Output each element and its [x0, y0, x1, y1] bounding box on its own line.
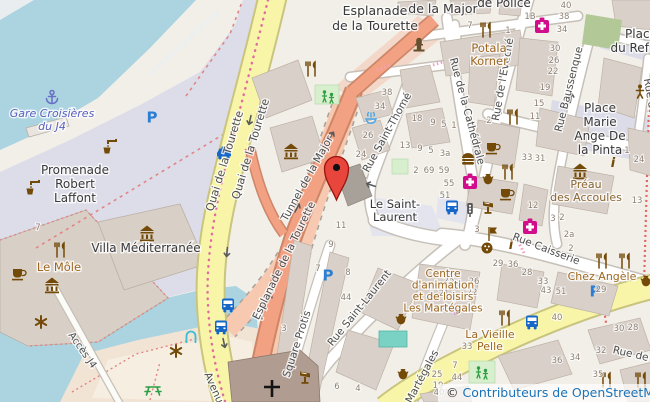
house-number: 30	[614, 324, 625, 334]
house-number: 2	[559, 213, 564, 223]
house-number: 30	[550, 44, 561, 54]
house-number: 35	[593, 370, 604, 380]
house-number: 26	[549, 56, 560, 66]
place-label-le-saint-laurent: Laurent	[373, 210, 418, 224]
house-number: 13	[632, 196, 643, 206]
attribution-text[interactable]: ©Contributeurs de OpenStreetMap	[446, 385, 650, 400]
information-icon	[611, 156, 616, 171]
house-number: 38	[559, 12, 570, 22]
place-label-preau-des-accoules: Préau	[570, 178, 601, 191]
house-number: 5	[441, 120, 446, 130]
house-number: 8	[345, 268, 350, 278]
place-label-chez-angele: Chez Angèle	[568, 270, 637, 283]
house-number: 44	[452, 373, 463, 383]
place-label-place-marie-ange-de-la-pinta: Marie	[583, 115, 616, 129]
house-number: 29	[596, 285, 607, 295]
house-number: 25	[432, 370, 443, 380]
place-label-promenade-robert-laffont: Robert	[55, 177, 95, 191]
place-label-place-marie-ange-de-la-pinta: la Pinta	[578, 143, 622, 157]
house-number: 34	[375, 102, 386, 112]
place-label-centre-les-martegales: et de loisirs	[413, 291, 474, 303]
house-number: 34	[557, 25, 568, 35]
house-number: 38	[382, 88, 393, 98]
house-number: 43	[541, 286, 552, 296]
house-number: 32	[596, 346, 607, 356]
place-label-le-saint-laurent: Le Saint-	[370, 197, 420, 211]
place-label-place-du-refuge: Place	[625, 27, 650, 41]
house-number: 34	[570, 353, 581, 363]
house-number: 11	[336, 221, 347, 231]
house-number: 44	[341, 293, 352, 303]
parking-icon	[147, 109, 158, 127]
house-number: 69	[424, 166, 435, 176]
map-viewport[interactable]: P i	[0, 0, 650, 402]
house-number: 19	[540, 83, 551, 93]
house-number: 40	[561, 1, 572, 11]
map-canvas[interactable]: P i	[0, 0, 650, 402]
house-number: 36	[508, 260, 519, 270]
house-number: 55	[444, 179, 455, 189]
house-number: 7	[315, 264, 320, 274]
house-number: 31	[535, 154, 546, 164]
house-number: 1	[451, 121, 456, 131]
house-number: 3	[281, 324, 286, 334]
place-label-de-police: de Police	[477, 0, 531, 10]
house-number: 9	[430, 118, 435, 128]
house-number: 28	[628, 323, 639, 333]
osm-contributors-link[interactable]: Contributeurs de OpenStreetMap	[463, 385, 650, 400]
place-label-place-marie-ange-de-la-pinta: Place	[584, 101, 616, 115]
pool	[379, 331, 407, 347]
place-label-centre-les-martegales: Les Martégales	[403, 303, 482, 315]
place-label-esplanade-de-la-tourette: Esplanade	[343, 3, 408, 18]
house-number: 18	[412, 114, 423, 124]
house-number: 51	[556, 287, 567, 297]
house-number: 6	[334, 382, 339, 392]
house-number: 11	[530, 112, 541, 122]
place-label-place-du-refuge: du Refuge	[610, 41, 650, 55]
attribution[interactable]: ©Contributeurs de OpenStreetMap	[438, 384, 650, 402]
place-label-la-vieille-pelle: Pelle	[477, 340, 503, 353]
place-label-centre-les-martegales: Centre	[425, 268, 460, 280]
house-number: 24	[356, 150, 367, 160]
house-number: 24	[634, 155, 645, 165]
place-label-le-mole: Le Môle	[37, 260, 81, 274]
place-label-promenade-robert-laffont: Laffont	[54, 191, 96, 205]
place-label-gare-croisieres-du-j4: du J4	[38, 120, 66, 133]
house-number: 7	[35, 223, 40, 233]
place-label-promenade-robert-laffont: Promenade	[41, 163, 109, 177]
house-number: 13	[400, 141, 411, 151]
house-number: 51	[440, 191, 451, 201]
house-number: 33	[522, 153, 533, 163]
place-label-esplanade-de-la-tourette: de la Tourette	[332, 18, 418, 33]
place-label-preau-des-accoules: des Accoules	[550, 191, 622, 204]
house-number: 1	[505, 26, 510, 36]
house-number: 22	[548, 67, 559, 77]
house-number: 1B	[524, 12, 535, 22]
house-number: 3a	[440, 149, 451, 159]
parking-icon	[323, 267, 334, 285]
house-number: 3	[474, 225, 479, 235]
house-number: 40	[552, 313, 563, 323]
house-number: 7	[467, 21, 472, 31]
place-label-gare-croisieres-du-j4: Gare Croisières	[10, 107, 95, 120]
place-label-de-la-major: de la Major	[408, 1, 478, 16]
place-label-potala-korner: Korner	[470, 54, 508, 68]
house-number: 36	[552, 356, 563, 366]
house-number: 9	[328, 240, 333, 250]
house-number: 9	[417, 144, 422, 154]
place-label-potala-korner: Potala	[471, 41, 506, 55]
place-label-villa-mediterranee: Villa Méditerranée	[91, 241, 200, 255]
house-number: 12	[528, 201, 539, 211]
house-number: 28	[522, 268, 533, 278]
house-number: 1	[624, 146, 629, 156]
house-number: 29	[493, 259, 504, 269]
house-number: 26	[363, 131, 374, 141]
house-number: 4	[355, 384, 360, 394]
art-palette-icon	[482, 243, 493, 254]
house-number: 2	[413, 166, 418, 176]
place-label-place-marie-ange-de-la-pinta: Ange De	[574, 129, 625, 143]
house-number: 7	[452, 361, 457, 371]
place-label-centre-les-martegales: d'animation	[412, 280, 474, 292]
house-number: 2a	[564, 230, 575, 240]
house-number: 5	[428, 146, 433, 156]
house-number: 59	[439, 166, 450, 176]
house-number: 15	[534, 99, 545, 109]
house-number: 33	[462, 342, 473, 352]
house-number: 3	[550, 214, 555, 224]
copyright-symbol: ©	[446, 385, 459, 400]
